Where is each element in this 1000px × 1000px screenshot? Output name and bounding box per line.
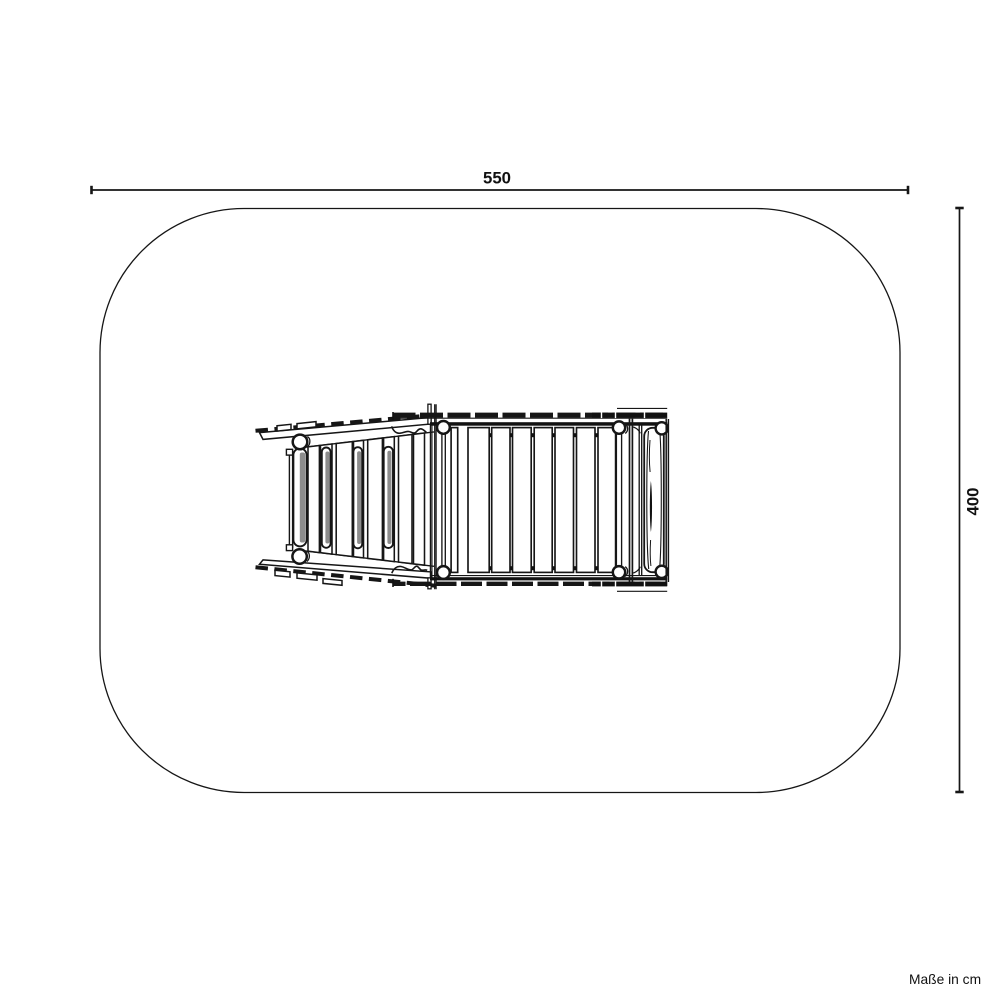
- svg-text:Maße in cm: Maße in cm: [909, 972, 981, 987]
- svg-text:550: 550: [483, 169, 511, 188]
- svg-text:400: 400: [963, 488, 982, 516]
